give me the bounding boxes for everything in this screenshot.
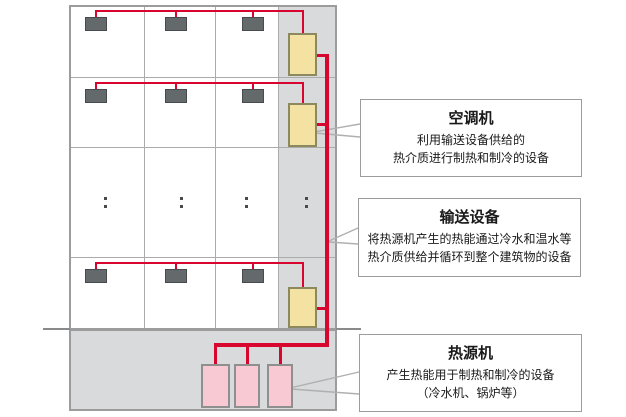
ceiling-pipe bbox=[95, 82, 304, 84]
callout-air-handler-title: 空调机 bbox=[361, 108, 581, 128]
callout-air-handler: 空调机 利用输送设备供给的 热介质进行制热和制冷的设备 bbox=[360, 99, 582, 177]
ceiling-ac-unit bbox=[242, 17, 264, 31]
heat-source-unit bbox=[201, 364, 230, 408]
callout-heat-source-line: （冷水机、锅炉等） bbox=[360, 385, 581, 402]
ceiling-ac-unit bbox=[242, 269, 264, 283]
main-riser-pipe bbox=[325, 54, 329, 347]
ceiling-pipe bbox=[95, 10, 304, 12]
air-handler-unit bbox=[288, 103, 317, 147]
floor-ellipsis-dot bbox=[245, 205, 248, 208]
ceiling-ac-unit bbox=[165, 89, 187, 103]
ceiling-ac-unit bbox=[85, 269, 107, 283]
ceiling-pipe bbox=[95, 262, 304, 264]
floor-ellipsis-dot bbox=[104, 205, 107, 208]
floor-ellipsis-dot bbox=[245, 197, 248, 200]
ceiling-ac-unit bbox=[85, 17, 107, 31]
callout-heat-source-title: 热源机 bbox=[360, 343, 581, 363]
floor-ellipsis-dot bbox=[104, 197, 107, 200]
callout-air-handler-line: 热介质进行制热和制冷的设备 bbox=[361, 150, 581, 167]
ahu-stem-pipe bbox=[302, 263, 304, 287]
hvac-building-diagram: 空调机 利用输送设备供给的 热介质进行制热和制冷的设备 输送设备 将热源机产生的… bbox=[0, 0, 626, 417]
callout-transport-line: 将热源机产生的热能通过冷水和温水等 bbox=[359, 231, 580, 248]
floor-ellipsis-dot bbox=[305, 205, 308, 208]
callout-heat-source-line: 产生热能用于制热和制冷的设备 bbox=[360, 367, 581, 384]
ahu-stem-pipe bbox=[302, 83, 304, 103]
ceiling-ac-unit bbox=[165, 269, 187, 283]
heat-source-drop-pipe bbox=[246, 345, 249, 364]
floor-ellipsis-dot bbox=[180, 197, 183, 200]
ground-line-left bbox=[43, 328, 70, 330]
callout-heat-source: 热源机 产生热能用于制热和制冷的设备 （冷水机、锅炉等） bbox=[359, 334, 582, 412]
ceiling-ac-unit bbox=[85, 89, 107, 103]
callout-transport-line: 热介质供给并循环到整个建筑物的设备 bbox=[359, 249, 580, 266]
callout-transport-title: 输送设备 bbox=[359, 207, 580, 227]
callout-air-handler-line: 利用输送设备供给的 bbox=[361, 132, 581, 149]
heat-source-drop-pipe bbox=[279, 345, 282, 364]
air-handler-unit bbox=[288, 33, 317, 76]
callout-transport: 输送设备 将热源机产生的热能通过冷水和温水等 热介质供给并循环到整个建筑物的设备 bbox=[358, 198, 581, 277]
heat-source-drop-pipe bbox=[214, 345, 217, 364]
air-handler-unit bbox=[288, 287, 317, 328]
ceiling-ac-unit bbox=[165, 17, 187, 31]
floor-ellipsis-dot bbox=[305, 197, 308, 200]
basement-pipe-run bbox=[214, 343, 329, 347]
ground-line-right bbox=[336, 328, 361, 330]
heat-source-unit bbox=[234, 364, 260, 408]
heat-source-unit bbox=[267, 364, 293, 408]
ceiling-ac-unit bbox=[242, 89, 264, 103]
ahu-stem-pipe bbox=[302, 11, 304, 33]
floor-ellipsis-dot bbox=[180, 205, 183, 208]
